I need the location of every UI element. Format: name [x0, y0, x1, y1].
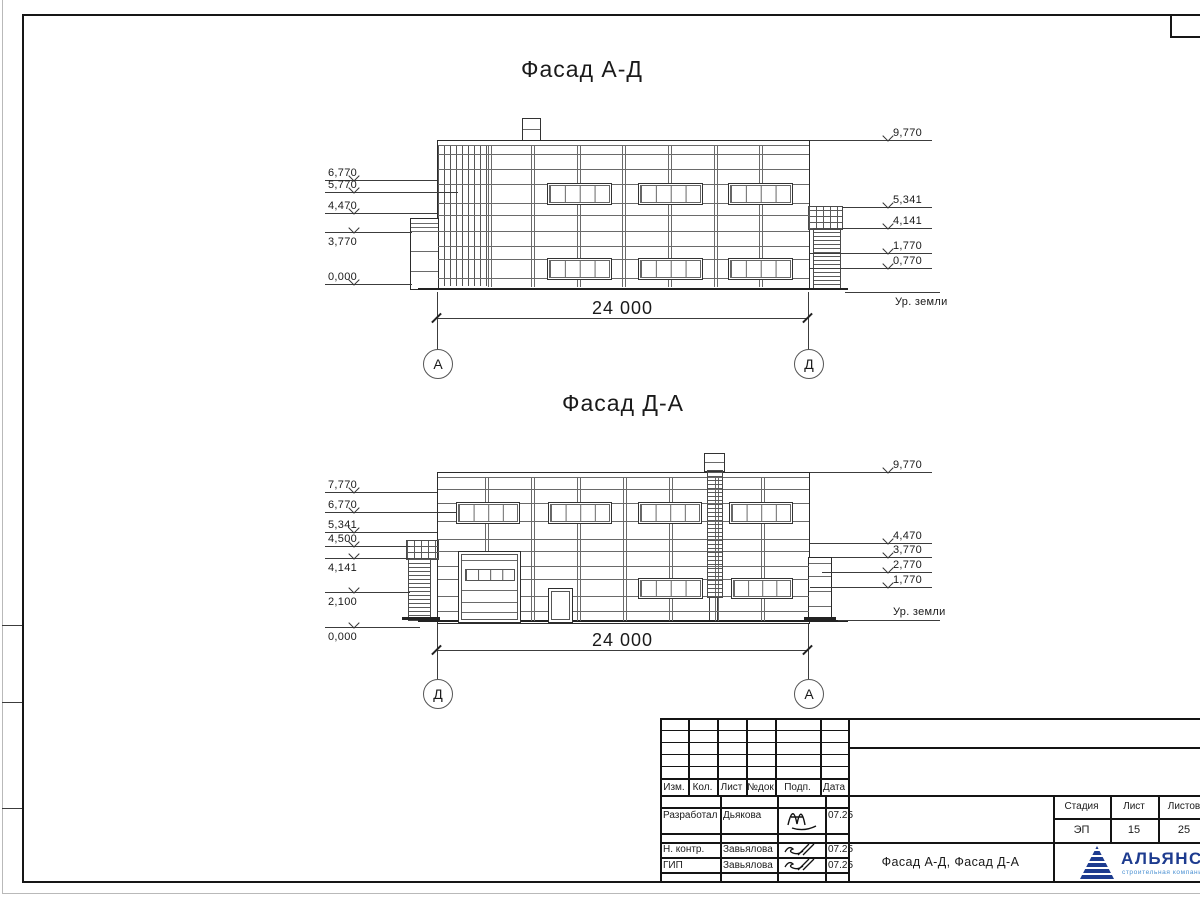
elevation-label: 3,770 [893, 544, 922, 556]
sheet-value: 15 [1110, 818, 1158, 842]
titleblock-line [660, 742, 850, 743]
elevation-leader-line [325, 512, 458, 513]
roof-vent-stack [522, 118, 541, 142]
gate-panel-line [462, 612, 517, 613]
elevation-leader-line [810, 268, 932, 269]
elevation-label: 0,770 [893, 255, 922, 267]
titleblock-line [660, 872, 850, 874]
stair-railing-grid [808, 206, 843, 230]
wall-panel-joint [531, 146, 535, 287]
sign-role: Разработал [663, 810, 717, 821]
elevation-label: 4,470 [893, 530, 922, 542]
porch-louver-line [411, 231, 438, 232]
ribbon-window [728, 258, 793, 280]
entrance-door [548, 588, 573, 623]
wall-panel-joint [531, 478, 535, 621]
elevation-label: 2,100 [328, 596, 357, 608]
filing-cell-line [2, 702, 22, 703]
ground-level-label: Ур. земли [895, 296, 948, 308]
rev-header-list: Лист [717, 779, 746, 795]
exterior-stair-ladder [408, 558, 431, 621]
overall-dimension: 24 000 [560, 298, 685, 319]
stage-value: ЭП [1053, 818, 1110, 842]
structure-line [809, 591, 831, 592]
signature [782, 858, 822, 872]
facade-da-title: Фасад Д-А [523, 390, 723, 417]
facade-ad-title: Фасад А-Д [482, 56, 682, 83]
wall-panel-joint [488, 146, 492, 287]
company-logo-text: АЛЬЯНС [1121, 849, 1200, 869]
sectional-gate [458, 551, 521, 623]
signature [782, 799, 822, 831]
ribbon-window [638, 502, 702, 524]
paper-edge-left [2, 0, 3, 893]
porch-panel-line [411, 251, 438, 252]
axis-marker-d: Д [423, 679, 453, 709]
sign-name: Дьякова [723, 810, 761, 821]
ribbon-window [728, 183, 793, 205]
stage-label: Стадия [1053, 796, 1110, 817]
gate-panel-line [462, 560, 517, 561]
ground-level-label: Ур. земли [893, 606, 946, 618]
side-structure [808, 557, 832, 620]
titleblock-line [660, 766, 850, 767]
sheets-label: Листов [1158, 796, 1200, 817]
elevation-leader-line [810, 253, 932, 254]
axis-marker-a: А [423, 349, 453, 379]
elevation-label: 2,770 [893, 559, 922, 571]
elevation-leader-line [325, 213, 437, 214]
elevation-label: 1,770 [893, 574, 922, 586]
elevation-label: 9,770 [893, 459, 922, 471]
wall-panel-joint [623, 478, 627, 621]
wall-panel-joint [761, 478, 765, 621]
elevation-leader-line [810, 587, 932, 588]
wall-panel-joint [669, 478, 673, 621]
elevation-leader-line [325, 284, 412, 285]
ribbon-window [547, 183, 612, 205]
sheets-value: 25 [1158, 818, 1200, 842]
titleblock-line [660, 833, 850, 835]
elevation-label: 0,000 [328, 631, 357, 643]
elevation-label: 3,770 [328, 236, 357, 248]
axis-marker-d: Д [794, 349, 824, 379]
wall-panel-joint [714, 146, 718, 287]
doc-title: Фасад А-Д, Фасад Д-А [850, 842, 1051, 881]
entrance-porch [410, 218, 439, 290]
structure-line [809, 606, 831, 607]
ground-leader-line [838, 620, 940, 621]
sign-name: Завьялова [723, 844, 773, 855]
titleblock-line [848, 747, 1200, 749]
company-logo-subtitle: строительная компания [1122, 869, 1200, 876]
extension-line [437, 292, 438, 350]
facade-ad-building [437, 140, 810, 290]
elevation-label: 4,141 [328, 562, 357, 574]
extension-line [437, 624, 438, 679]
porch-louver-line [411, 227, 438, 228]
porch-panel-line [411, 271, 438, 272]
elevation-label: 5,341 [893, 194, 922, 206]
corner-stamp-box [1170, 14, 1200, 38]
rev-header-izm: Изм. [660, 779, 688, 795]
rev-header-ndok: №док [746, 779, 775, 795]
sign-role: ГИП [663, 860, 683, 871]
elevation-leader-line [810, 472, 932, 473]
stair-railing-grid [406, 540, 439, 560]
paper-edge-bottom [2, 893, 1200, 894]
ladder-support-line [709, 596, 710, 620]
rev-header-data: Дата [820, 779, 848, 795]
ribbon-window [548, 502, 612, 524]
sign-role: Н. контр. [663, 844, 704, 855]
elevation-leader-line [822, 572, 932, 573]
extension-line [808, 624, 809, 679]
structure-line [809, 563, 831, 564]
wall-panel-joint [577, 478, 581, 621]
titleblock-line [660, 718, 1200, 720]
elevation-label: 4,141 [893, 215, 922, 227]
gate-panel-line [462, 590, 517, 591]
ribbon-window [638, 258, 703, 280]
elevation-leader-line [325, 558, 410, 559]
ribbon-window [731, 578, 793, 599]
ribbon-window [729, 502, 793, 524]
stack-cap-line [705, 462, 724, 463]
ground-base-line [418, 288, 848, 290]
structure-line [809, 576, 831, 577]
filing-cell-line [2, 625, 22, 626]
roof-access-ladder [707, 470, 723, 598]
ribbon-window [456, 502, 520, 524]
axis-marker-a: А [794, 679, 824, 709]
titleblock-line [660, 730, 850, 731]
wall-panel-joint [622, 146, 626, 287]
titleblock-line [660, 754, 850, 755]
porch-louver-line [411, 223, 438, 224]
sign-date: 07.25 [828, 810, 853, 821]
elevation-leader-line [325, 492, 437, 493]
gate-panel-line [462, 602, 517, 603]
facade-da-building [437, 472, 810, 624]
extension-line [808, 292, 809, 350]
elevation-label: 9,770 [893, 127, 922, 139]
exterior-stair-ladder [813, 228, 841, 290]
rev-header-podp: Подп. [775, 779, 820, 795]
vent-divider-line [523, 129, 540, 130]
ribbon-window [638, 578, 703, 599]
elevation-leader-line [832, 557, 932, 558]
ribbon-window [547, 258, 612, 280]
elevation-leader-line [325, 192, 458, 193]
sheet-label: Лист [1110, 796, 1158, 817]
filing-cell-line [2, 808, 22, 809]
gate-window-band [465, 569, 515, 581]
elevation-leader-line [325, 546, 410, 547]
ground-leader-line [845, 292, 940, 293]
titleblock-line [660, 881, 1200, 883]
elevation-label: 1,770 [893, 240, 922, 252]
drawing-sheet: { "f1": { "title": "Фасад А-Д", "dim": "… [0, 0, 1200, 900]
elevation-leader-line [325, 232, 412, 233]
signature [782, 843, 822, 857]
elevation-leader-line [810, 140, 932, 141]
elevation-leader-line [325, 627, 420, 628]
overall-dimension: 24 000 [560, 630, 685, 651]
ribbon-window [638, 183, 703, 205]
sign-name: Завьялова [723, 860, 773, 871]
elevation-leader-line [325, 592, 410, 593]
rev-header-kol: Кол. [688, 779, 717, 795]
